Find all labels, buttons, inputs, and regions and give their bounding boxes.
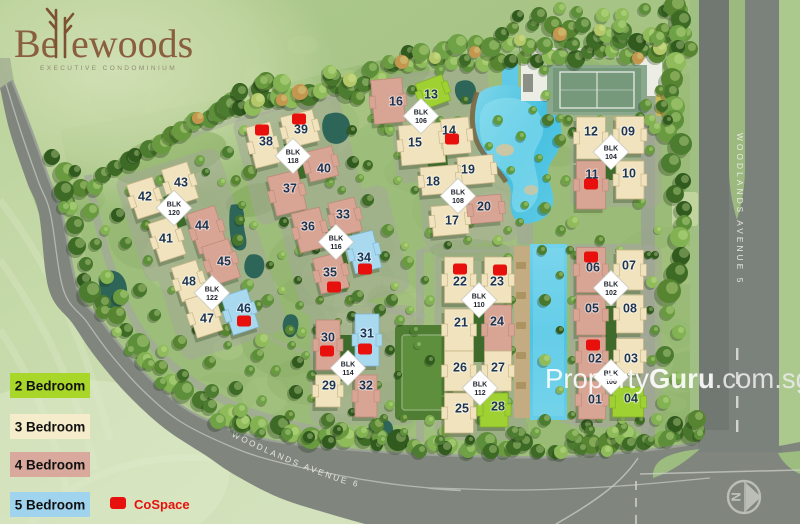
svg-text:104: 104 xyxy=(605,154,617,161)
svg-text:42: 42 xyxy=(138,190,152,204)
svg-text:BLK: BLK xyxy=(473,382,487,389)
svg-text:38: 38 xyxy=(259,135,273,149)
svg-text:17: 17 xyxy=(445,214,459,228)
svg-text:12: 12 xyxy=(584,125,598,139)
svg-text:01: 01 xyxy=(588,393,602,407)
svg-text:BLK: BLK xyxy=(341,362,355,369)
svg-text:21: 21 xyxy=(454,316,468,330)
svg-text:07: 07 xyxy=(622,259,636,273)
svg-text:106: 106 xyxy=(415,118,427,125)
svg-text:Be: Be xyxy=(14,21,58,66)
svg-text:26: 26 xyxy=(453,361,467,375)
svg-text:BLK: BLK xyxy=(167,202,181,209)
svg-text:37: 37 xyxy=(283,182,297,196)
svg-text:4 Bedroom: 4 Bedroom xyxy=(15,458,86,473)
svg-text:36: 36 xyxy=(301,220,315,234)
svg-text:33: 33 xyxy=(336,208,350,222)
svg-text:43: 43 xyxy=(174,176,188,190)
svg-text:41: 41 xyxy=(159,232,173,246)
svg-text:BLK: BLK xyxy=(472,294,486,301)
svg-text:ewoods: ewoods xyxy=(71,21,193,66)
svg-text:44: 44 xyxy=(195,219,209,233)
svg-text:BLK: BLK xyxy=(451,190,465,197)
svg-text:BLK: BLK xyxy=(329,236,343,243)
svg-text:BLK: BLK xyxy=(286,150,300,157)
svg-text:09: 09 xyxy=(621,125,635,139)
svg-text:23: 23 xyxy=(490,275,504,289)
svg-text:3 Bedroom: 3 Bedroom xyxy=(15,420,86,435)
svg-text:40: 40 xyxy=(317,162,331,176)
svg-text:BLK: BLK xyxy=(205,287,219,294)
svg-text:18: 18 xyxy=(426,175,440,189)
svg-text:WOODLANDS AVENUE 5: WOODLANDS AVENUE 5 xyxy=(735,133,745,285)
svg-text:BLK: BLK xyxy=(604,146,618,153)
svg-text:39: 39 xyxy=(294,123,308,137)
svg-text:N: N xyxy=(729,492,744,501)
svg-text:15: 15 xyxy=(408,136,422,150)
svg-text:EXECUTIVE CONDOMINIUM: EXECUTIVE CONDOMINIUM xyxy=(40,65,177,72)
svg-text:114: 114 xyxy=(342,370,353,377)
svg-text:5 Bedroom: 5 Bedroom xyxy=(15,498,86,513)
svg-text:30: 30 xyxy=(321,331,335,345)
svg-text:46: 46 xyxy=(237,302,251,316)
svg-text:34: 34 xyxy=(357,251,371,265)
svg-text:2 Bedroom: 2 Bedroom xyxy=(15,379,86,394)
svg-text:16: 16 xyxy=(389,95,403,109)
svg-text:32: 32 xyxy=(359,379,373,393)
svg-text:BLK: BLK xyxy=(414,110,428,117)
svg-text:BLK: BLK xyxy=(604,282,618,289)
svg-text:CoSpace: CoSpace xyxy=(134,497,190,512)
svg-text:08: 08 xyxy=(623,302,637,316)
svg-text:28: 28 xyxy=(491,400,505,414)
svg-text:47: 47 xyxy=(200,312,214,326)
svg-text:116: 116 xyxy=(330,244,341,251)
svg-text:27: 27 xyxy=(491,361,505,375)
svg-text:24: 24 xyxy=(490,315,504,329)
svg-text:102: 102 xyxy=(605,290,617,297)
svg-text:35: 35 xyxy=(323,266,337,280)
svg-text:120: 120 xyxy=(168,210,180,217)
svg-text:19: 19 xyxy=(461,163,475,177)
svg-text:122: 122 xyxy=(206,295,218,302)
svg-text:06: 06 xyxy=(586,261,600,275)
svg-text:48: 48 xyxy=(182,275,196,289)
svg-text:20: 20 xyxy=(477,200,491,214)
svg-text:108: 108 xyxy=(452,198,464,205)
svg-text:45: 45 xyxy=(217,255,231,269)
svg-text:110: 110 xyxy=(473,302,484,309)
svg-text:22: 22 xyxy=(453,275,467,289)
svg-text:29: 29 xyxy=(322,379,336,393)
svg-text:112: 112 xyxy=(474,390,485,397)
svg-text:PropertyGuru.com.sg: PropertyGuru.com.sg xyxy=(545,363,800,394)
svg-text:118: 118 xyxy=(287,158,298,165)
svg-text:13: 13 xyxy=(424,88,438,102)
svg-text:31: 31 xyxy=(360,327,374,341)
svg-text:10: 10 xyxy=(622,167,636,181)
svg-text:25: 25 xyxy=(455,402,469,416)
svg-text:05: 05 xyxy=(585,302,599,316)
